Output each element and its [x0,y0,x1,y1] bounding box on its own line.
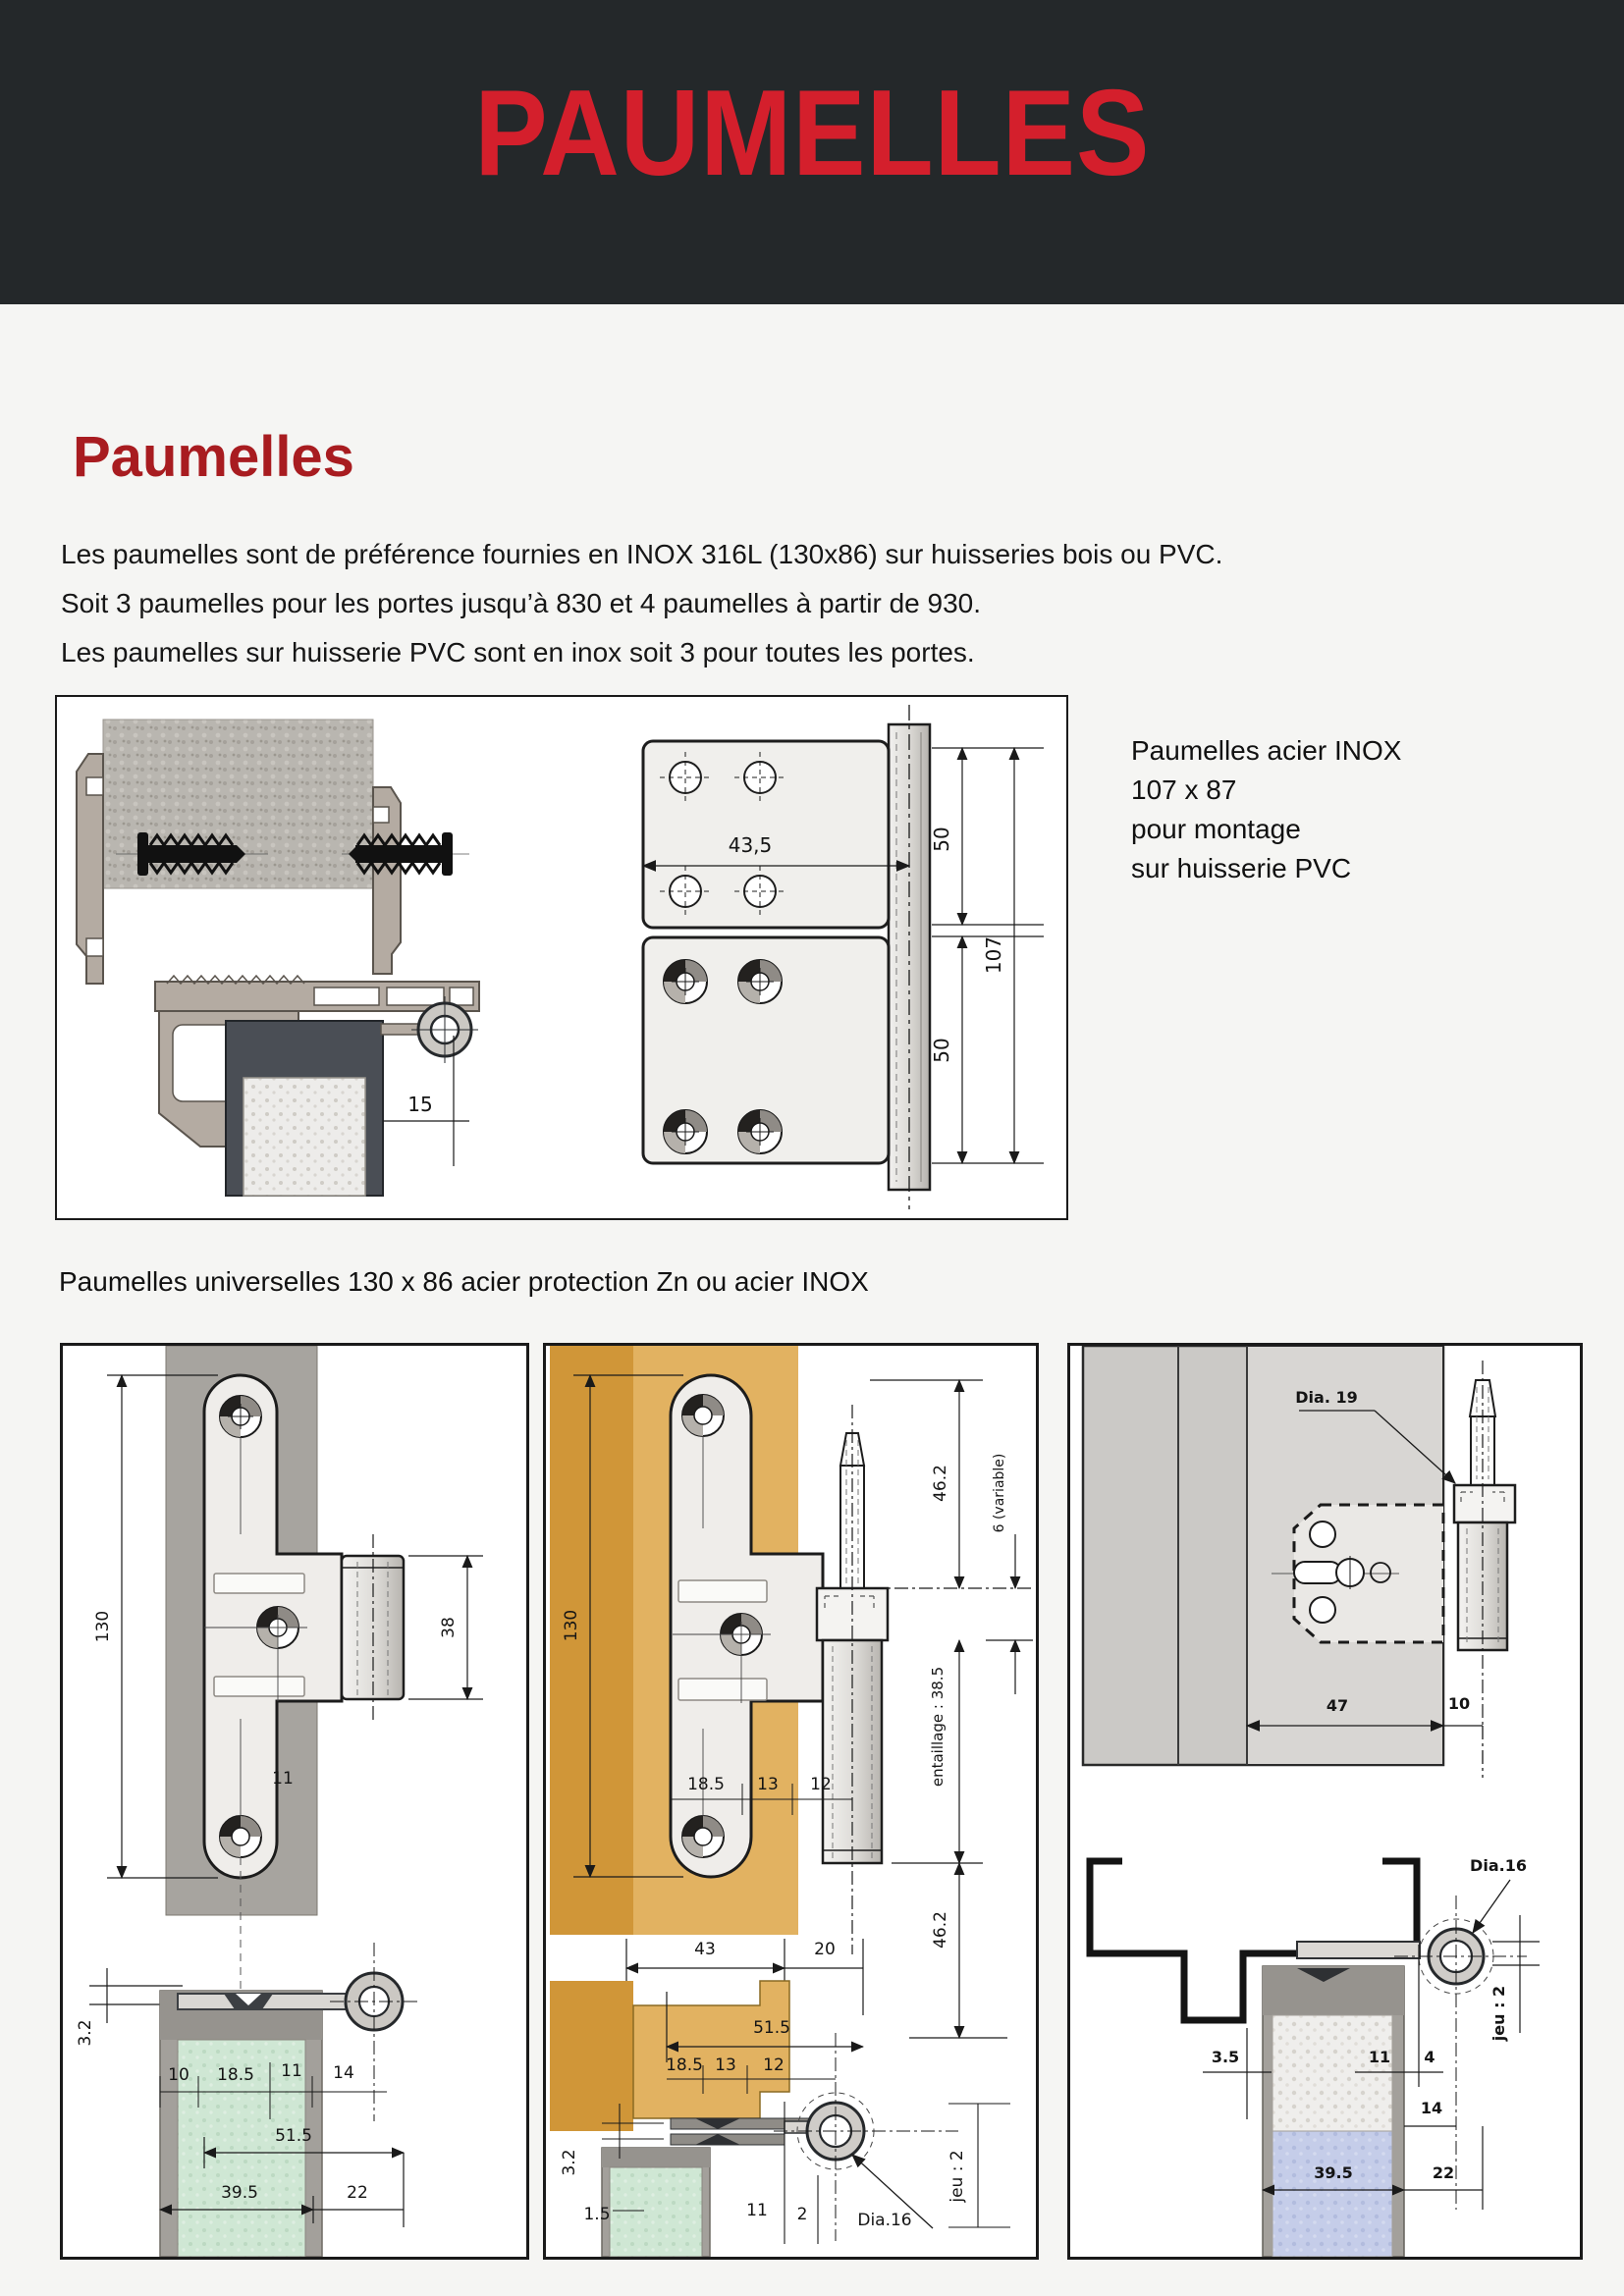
dim-10: 10 [1448,1694,1470,1713]
dim-right-lines [870,1380,1033,2038]
dim-jeu: jeu : 2 [1489,1986,1508,2042]
intro-line: Les paumelles sont de préférence fournie… [61,530,1222,579]
dim-11: 11 [281,2061,302,2081]
dim-20: 20 [814,1940,836,1959]
metal-hinge-diagram: Dia. 19 47 10 [1067,1343,1583,2260]
dim-height: 130 [562,1610,581,1641]
wood-lower-light [633,1981,789,2118]
dim-leaf-thk: 3.2 [76,2019,95,2046]
svg-text:43,5: 43,5 [729,833,773,857]
knuckle-barrel [342,1534,404,1723]
hinge-pin [817,1405,888,1954]
door-section [226,1021,383,1196]
dim-jeu: jeu : 2 [947,2150,967,2203]
svg-text:Dia. 19: Dia. 19 [1295,1388,1357,1407]
dim-variable: 6 (variable) [992,1454,1007,1533]
dim-height: 130 [93,1611,113,1642]
section-heading: Paumelles [73,424,354,490]
dim-22: 22 [1433,2163,1454,2182]
dim-dia16: Dia.16 [857,2211,911,2230]
dim-51-5: 51.5 [753,2018,790,2038]
hidden-plate [1272,1505,1443,1642]
dim-11: 11 [746,2201,768,2220]
dim-10: 10 [168,2065,189,2085]
door-cross-section [160,1991,322,2257]
hinge-pin [1454,1361,1515,1729]
side-note: Paumelles acier INOX 107 x 87 pour monta… [1131,731,1401,888]
hinge-leaf-section [178,1994,347,2009]
wood-hinge-diagram: 130 [543,1343,1039,2260]
frame-profile-left [77,754,103,984]
dim-3-5: 3.5 [1212,2048,1239,2066]
dim-r2b: 13 [715,2056,736,2075]
dim-r2a: 18.5 [666,2056,703,2075]
dim-14: 14 [333,2063,354,2083]
dim-leaf-thk: 3.2 [560,2149,579,2175]
dim-r1b: 13 [757,1775,779,1794]
dim-pitch-top: 50 [930,827,953,851]
page-title: PAUMELLES [0,73,1624,194]
pvc-hinge-diagram: 15 [55,695,1068,1220]
dim-2: 2 [797,2205,808,2224]
hinge-barrel [889,705,930,1209]
dim-r1a: 18.5 [687,1775,725,1794]
leaf-section [1297,1942,1420,1958]
wood-lower-dark [550,1981,633,2131]
dim-18-5: 18.5 [217,2065,254,2085]
svg-text:Dia.16: Dia.16 [1470,1856,1527,1875]
dia16-label: Dia.16 [1470,1856,1527,1933]
intro-text: Les paumelles sont de préférence fournie… [61,530,1222,677]
intro-line: Soit 3 paumelles pour les portes jusqu’à… [61,579,1222,628]
door-cross-section [1263,1966,1404,2257]
dim-46-top: 46.2 [931,1465,950,1502]
door-cross-section [602,2148,710,2257]
frame-profile-right [373,787,401,974]
dim-total-height: 107 [982,936,1005,974]
catalog-page: PAUMELLES Paumelles Les paumelles sont d… [0,0,1624,2296]
steel-hinge-diagram: 130 38 11 [60,1343,529,2260]
universal-caption: Paumelles universelles 130 x 86 acier pr… [59,1266,869,1298]
dim-4: 4 [1424,2048,1435,2066]
dim-11: 11 [1369,2048,1390,2066]
knuckle-section [330,1943,418,2121]
dim-46-bottom: 46.2 [931,1911,950,1949]
dim-r1c: 12 [810,1775,832,1794]
dim-43: 43 [694,1940,716,1959]
dim-label-offset: 15 [407,1093,432,1116]
dim-14: 14 [1421,2099,1442,2117]
dim-r2c: 12 [763,2056,785,2075]
dim-notch: entaillage : 38.5 [929,1667,947,1787]
dim-pitch-bottom: 50 [930,1038,953,1062]
dim-22: 22 [347,2183,368,2203]
screw-right [342,832,469,876]
dim-39-5: 39.5 [221,2183,258,2203]
intro-line: Les paumelles sur huisserie PVC sont en … [61,628,1222,677]
dim-51-5: 51.5 [275,2126,312,2146]
page-header: PAUMELLES [0,0,1624,304]
dim-1-5: 1.5 [583,2205,610,2224]
dim-plate-thk: 11 [272,1769,294,1789]
dim-39-5: 39.5 [1314,2163,1352,2182]
dim-knuckle: 38 [439,1617,459,1638]
dim-47: 47 [1326,1696,1348,1715]
